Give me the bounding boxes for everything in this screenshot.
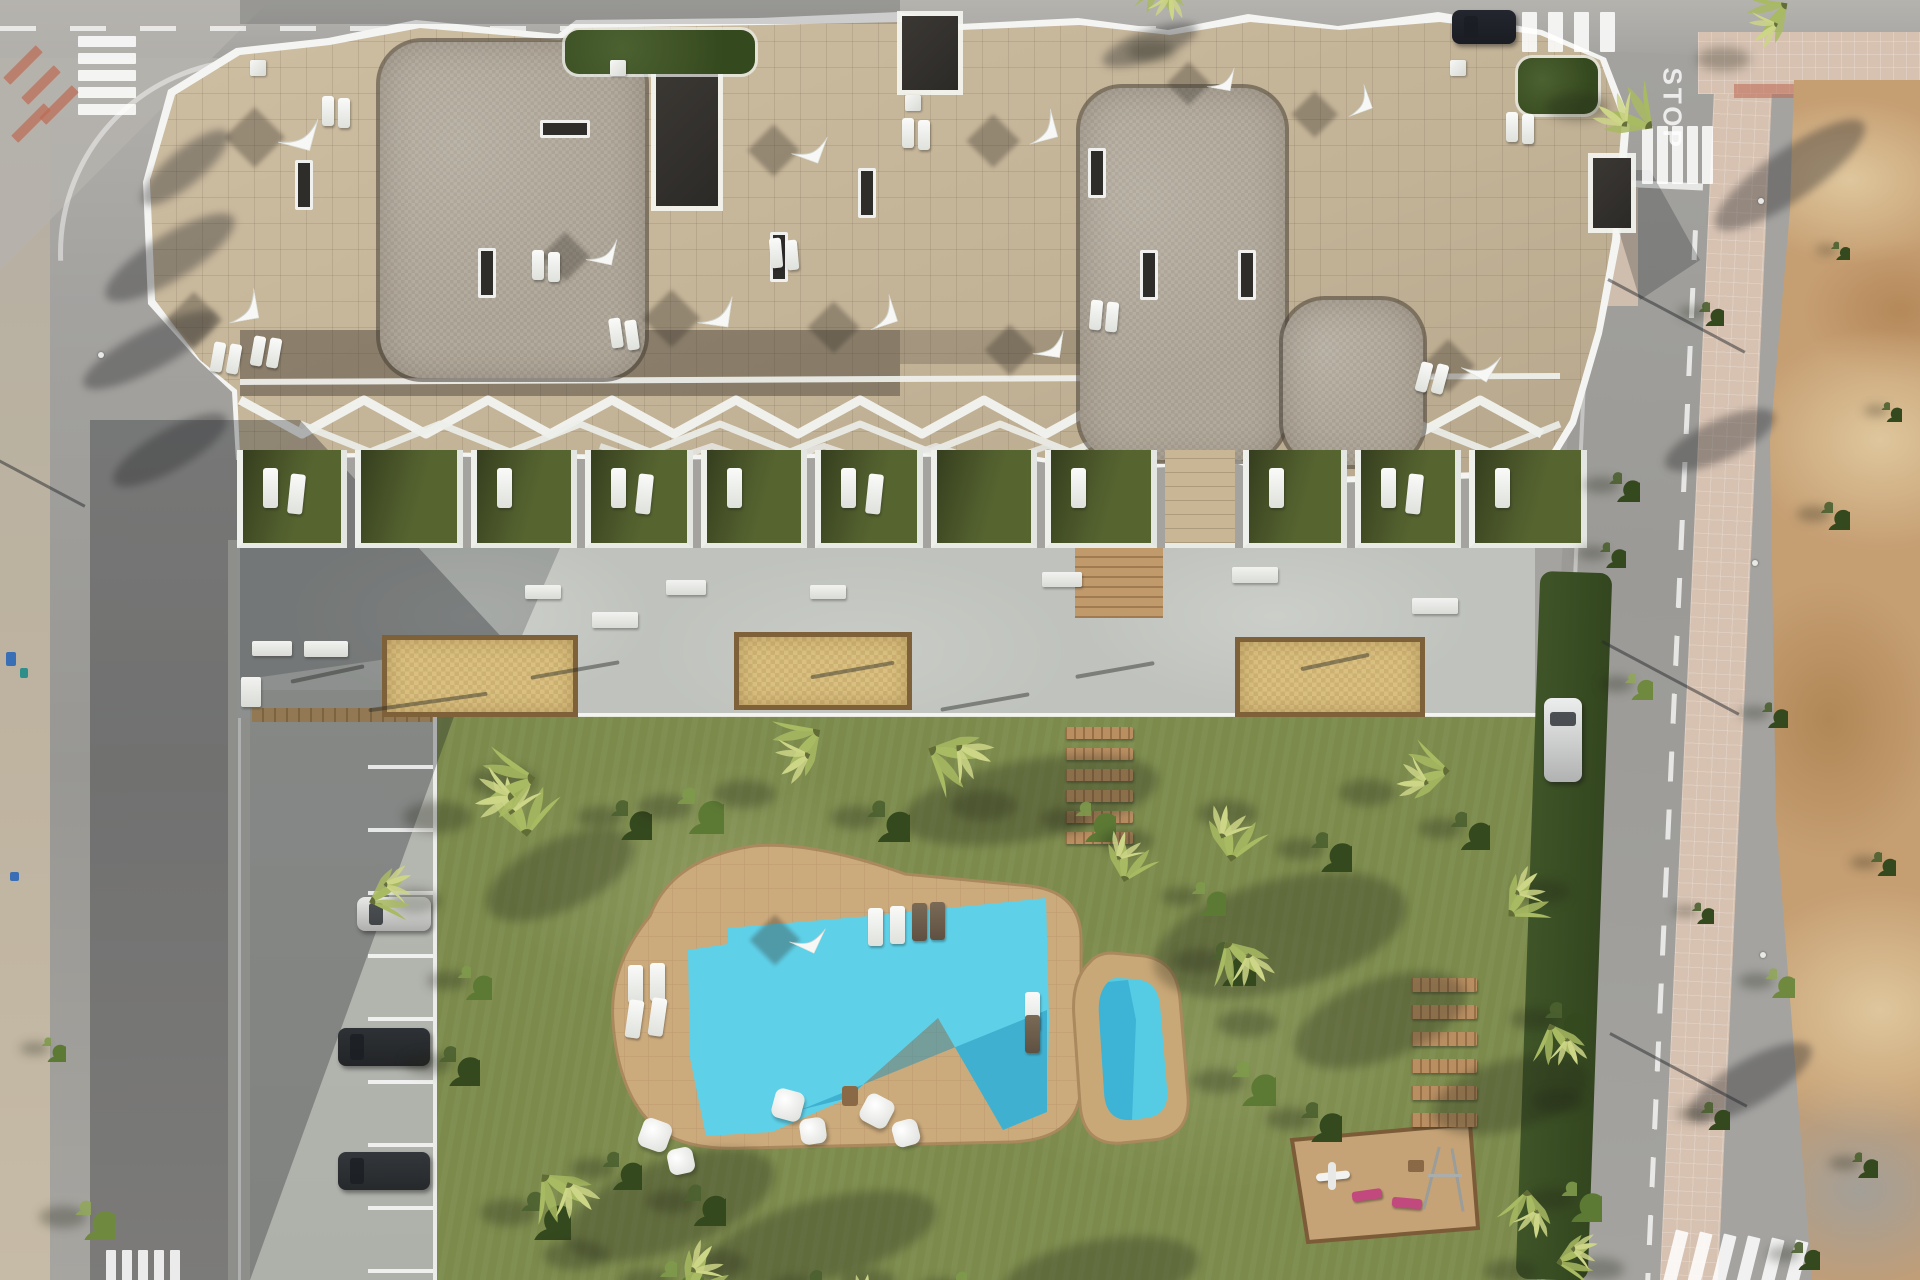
palm-tree (1534, 26, 1653, 145)
dark-bush (489, 1158, 542, 1211)
plant-shadow (576, 806, 624, 828)
pool-lounger (912, 903, 927, 941)
palm-tree (1172, 722, 1312, 862)
parking-line (368, 954, 433, 958)
bench (1412, 598, 1458, 614)
green-bush (1171, 860, 1205, 894)
plant-shadow (1738, 973, 1774, 990)
plant-shadow (1577, 546, 1608, 560)
crosswalk-bar-top_left (78, 36, 136, 47)
palm-tree (1514, 1024, 1630, 1140)
umbrella-shadow (1291, 92, 1338, 139)
kids-pool-water (1099, 978, 1168, 1120)
tree-shadow (1678, 1028, 1822, 1137)
dark-bush (1802, 482, 1833, 513)
swing-frame (1428, 1174, 1462, 1177)
plant-shadow (1532, 1089, 1585, 1113)
dark-bush (1848, 828, 1896, 876)
pole-shadow (810, 661, 894, 680)
gravel-roof-patch (1283, 300, 1423, 465)
plant-shadow (1197, 800, 1257, 828)
red-crosswalk-bar (11, 103, 51, 143)
palm-tree (677, 1187, 787, 1280)
private-garden-terrace (1243, 450, 1347, 548)
dark-bush (778, 1242, 822, 1280)
roof-lounger (624, 319, 640, 350)
plant-shadow (1816, 245, 1838, 255)
parking-line (368, 1143, 433, 1147)
umbrella-shadow (984, 325, 1035, 376)
dark-bush (1826, 1126, 1878, 1178)
crosswalk-bar-bottom_left (106, 1250, 116, 1280)
patio-umbrella (663, 253, 738, 328)
tree-shadow (104, 400, 237, 500)
plant-shadow (427, 971, 468, 990)
tree-shadow (1702, 103, 1878, 247)
deck-table (842, 1086, 858, 1106)
palm-tree (928, 710, 1072, 854)
dark-bush (475, 1144, 571, 1240)
wooden-step (1065, 790, 1133, 802)
red-crosswalk-bar (21, 65, 61, 105)
building-cast-shadow (240, 0, 900, 24)
palm-tree (1335, 725, 1430, 820)
dark-bush (839, 771, 885, 817)
skylight (1140, 250, 1158, 300)
crosswalk-bar-top_left (78, 87, 136, 98)
crosswalk-bar-bottom_right (1708, 1233, 1736, 1280)
dark-bush (1736, 676, 1788, 728)
green-bush (18, 1014, 66, 1062)
dark-bush (572, 760, 652, 840)
green-bush (1036, 762, 1116, 842)
roof-lounger (918, 120, 930, 150)
plant-shadow (1266, 1108, 1314, 1130)
plant-shadow (20, 1042, 49, 1055)
playground-pad (1292, 1124, 1478, 1242)
dark-bush (1794, 474, 1850, 530)
pool-area-graphic (0, 0, 1920, 1280)
plant-shadow (1677, 1106, 1711, 1121)
roof-hedge (565, 30, 755, 74)
skylight (770, 232, 788, 282)
wooden-lounger (1411, 1059, 1477, 1073)
rooftop-unit (610, 60, 626, 76)
parking-line (368, 1269, 433, 1273)
pool-lounger (890, 906, 905, 944)
roof-lounger (548, 252, 560, 282)
crosswalk-bar-bottom_right (1660, 1229, 1688, 1280)
tree-shadow (551, 1125, 789, 1280)
pole-shadow (368, 692, 487, 713)
lounge-cushion (890, 1117, 922, 1149)
stop-line (1631, 180, 1703, 190)
plant-shadow (543, 1240, 608, 1270)
driveway-grate (252, 708, 433, 722)
palm-tree (1123, 0, 1203, 74)
bench (810, 585, 846, 599)
rooftop-unit (905, 95, 921, 111)
pool-lounger (1025, 992, 1040, 1030)
lamp-shadow (0, 432, 86, 507)
palm-tree (396, 733, 514, 851)
gravel-roof-patch (1080, 88, 1285, 460)
palm-tree (1314, 704, 1450, 840)
pool-lounger (647, 997, 667, 1037)
palm-tree (1527, 1037, 1616, 1126)
stop-road-marking: STOP (1652, 72, 1692, 152)
crosswalk-bar-top_left (78, 104, 136, 115)
roof-lounger (902, 118, 914, 148)
crosswalk-bar-top_right (1522, 12, 1537, 52)
plant-shadow (1850, 856, 1879, 869)
car (1452, 10, 1516, 44)
plant-shadow (1600, 676, 1634, 691)
rooftop-unit (1450, 60, 1466, 76)
plant-shadow (770, 1276, 818, 1280)
umbrella-shadow (166, 291, 222, 347)
hedge-strip (1516, 571, 1613, 1280)
crosswalk-bar-top_left (78, 70, 136, 81)
palm-tree (534, 1174, 649, 1280)
lamp-shadow (1601, 640, 1739, 715)
bench (525, 585, 561, 599)
plant-shadow (388, 889, 441, 913)
dark-bush (1868, 388, 1890, 410)
private-garden-terrace (931, 450, 1037, 548)
road-edge-line (1539, 220, 1593, 1280)
plant-shadow (1339, 779, 1397, 805)
pool-lounger (930, 902, 945, 940)
palm-tree (374, 711, 536, 873)
patio-umbrella (1002, 292, 1068, 358)
crosswalk-bar-right_road (1642, 126, 1653, 184)
crosswalk-bar-top_right (1600, 12, 1615, 52)
dark-bush (826, 758, 910, 842)
plant-shadow (1526, 1188, 1574, 1210)
lamp-shadow (1607, 278, 1745, 353)
fence-line (238, 556, 241, 1280)
dark-bush (1518, 974, 1562, 1018)
crosswalk-bar-right_road (1672, 126, 1683, 184)
tree (1747, 949, 1777, 979)
skylight (478, 248, 496, 298)
plant-shadow (1040, 808, 1088, 830)
plant-shadow (480, 1199, 538, 1225)
crosswalk-bar-bottom_left (170, 1250, 180, 1280)
sand-planter (1240, 642, 1420, 712)
patio-umbrella (762, 87, 839, 164)
sun-lounger (841, 468, 856, 508)
dark-bush (1744, 684, 1773, 713)
left-sidewalk (228, 540, 252, 1280)
patio-umbrella (761, 876, 838, 953)
roof-lounger (1506, 112, 1518, 142)
dark-bush (566, 1114, 642, 1190)
private-garden-terrace (471, 450, 577, 548)
terrace-stone-path (1165, 450, 1235, 548)
wooden-lounger (1411, 978, 1477, 992)
plant-shadow (1767, 1246, 1801, 1261)
dark-bush (655, 1155, 701, 1201)
dark-bush (1855, 835, 1881, 861)
pool-deck-texture (613, 845, 1081, 1148)
dark-bush (1834, 1134, 1863, 1163)
wood-platform (1075, 548, 1163, 618)
palm-tree (1515, 831, 1598, 914)
skylight (1088, 148, 1106, 198)
plant-shadow (1100, 829, 1153, 853)
spring-rider (1392, 1197, 1423, 1210)
parking-line (368, 765, 433, 769)
palm-tree (464, 702, 576, 814)
plant-shadow (713, 780, 775, 809)
dark-bush (1582, 524, 1611, 553)
lane-dashes (1643, 230, 1698, 1280)
main-pool-water (688, 898, 1049, 1136)
right-sidewalk (1657, 46, 1774, 1280)
crosswalk-bar-bottom_left (122, 1250, 132, 1280)
green-bush (649, 758, 695, 804)
car (338, 1028, 430, 1066)
red-crosswalk-bar (39, 85, 79, 125)
plant-shadow (637, 795, 692, 820)
roof-lounger (225, 343, 242, 375)
right-road (1526, 50, 1734, 1280)
wooden-step (1065, 748, 1133, 760)
palm-tree (1571, 1211, 1652, 1280)
plant-shadow (1546, 93, 1608, 122)
lamp-shadow (1609, 1032, 1747, 1107)
sun-lounger (497, 468, 512, 508)
swing-frame (1450, 1148, 1464, 1212)
sun-lounger (1381, 468, 1396, 508)
umbrella-shadow (807, 301, 860, 354)
plant-shadow (39, 1206, 87, 1228)
tree (51, 1175, 91, 1215)
palm-tree (1101, 783, 1179, 861)
palm-tree (369, 823, 487, 941)
dark-bush (1274, 1074, 1318, 1118)
pool-lounger (624, 999, 644, 1039)
plant-shadow (1797, 506, 1831, 521)
plant-shadow (1864, 405, 1888, 416)
sand-planter (387, 640, 573, 712)
palm-tree (1195, 745, 1288, 838)
stair-core (1593, 158, 1631, 228)
tree-shadow (1140, 848, 1420, 1022)
crosswalk-bar-bottom_left (154, 1250, 164, 1280)
plant-shadow (1510, 1008, 1558, 1030)
private-garden-terrace (237, 450, 347, 548)
dark-bush (1262, 1062, 1342, 1142)
plant-shadow (687, 1250, 747, 1278)
private-garden-terrace (585, 450, 693, 548)
wooden-step (1065, 811, 1133, 823)
roof-lounger (769, 238, 784, 269)
seesaw (1328, 1162, 1336, 1190)
dark-bush (1414, 774, 1490, 850)
left-verge (0, 0, 56, 1280)
dark-bush (1506, 962, 1586, 1042)
palm-tree (1508, 824, 1603, 919)
private-garden-terrace (1045, 450, 1157, 548)
bench (666, 580, 706, 595)
tree (1608, 655, 1636, 683)
tree (35, 1160, 115, 1240)
private-garden-terrace (1355, 450, 1461, 548)
patio-umbrella (822, 264, 898, 340)
sun-lounger (635, 473, 654, 514)
pool-lounger (1025, 1015, 1040, 1053)
car-windshield (369, 903, 383, 925)
crosswalk-bar-bottom_left (138, 1250, 148, 1280)
parking-line (368, 828, 433, 832)
dark-bush (1425, 785, 1467, 827)
plant-shadow (830, 806, 880, 829)
patio-umbrella (982, 77, 1058, 153)
plant-shadow (1217, 1010, 1277, 1038)
sun-lounger (865, 473, 884, 514)
roof-lounger (322, 96, 334, 126)
sun-lounger (1269, 468, 1284, 508)
building-cast-shadow (0, 0, 1920, 1280)
lounge-cushion (636, 1116, 674, 1154)
roof-lounger (249, 335, 266, 367)
parking-line (368, 1080, 433, 1084)
pole-shadow (1075, 661, 1154, 679)
umbrella-shadow (541, 232, 590, 281)
bench (592, 612, 638, 628)
wooden-step (1065, 727, 1133, 739)
bench (241, 677, 261, 707)
plant-shadow (646, 1190, 696, 1213)
plant-shadow (404, 1052, 452, 1074)
dark-bush (1574, 516, 1626, 568)
sun-lounger (727, 468, 742, 508)
stair-core (902, 16, 958, 90)
dark-bush (1819, 229, 1839, 249)
crosswalk-bar-top_right (1548, 12, 1563, 52)
sun-lounger (287, 473, 306, 514)
roof-lounger (532, 250, 544, 280)
aerial-render-scene: STOP (0, 0, 1920, 1280)
roof-lounger (1430, 363, 1449, 395)
plant-shadow (1739, 706, 1770, 720)
wooden-lounger (1411, 1032, 1477, 1046)
sun-lounger (263, 468, 278, 508)
building-parapet (140, 12, 1636, 494)
waste-bin (20, 668, 28, 678)
palm-tree (1213, 953, 1311, 1051)
crosswalk-bar-right_road (1687, 126, 1698, 184)
lane-dashes (0, 26, 1490, 31)
palm-tree (1462, 1190, 1586, 1280)
roof-lounger (338, 98, 350, 128)
private-garden-terrace (1469, 450, 1587, 548)
street-lamp (1752, 560, 1758, 566)
sidewalk-red-accent (1734, 84, 1810, 98)
lawn-curb (437, 713, 1537, 717)
palm-tree (818, 1198, 947, 1280)
pole-shadow (290, 664, 364, 684)
tree (1735, 938, 1795, 998)
patio-umbrella (242, 65, 328, 151)
tree-shadow (1657, 397, 1783, 484)
street-lamp (98, 352, 104, 358)
roof-lounger (1089, 300, 1104, 331)
tree-shadow (1424, 1040, 1597, 1149)
roof-lounger (785, 240, 800, 271)
plant-shadow (620, 1269, 673, 1280)
dark-bush (1683, 285, 1709, 311)
tree-shadow (74, 297, 225, 403)
green-bush (616, 1218, 704, 1280)
crosswalk-bar-right_road (1657, 126, 1668, 184)
car (357, 897, 431, 931)
gravel-roof-patch (380, 42, 645, 378)
vacant-dirt-lot (1690, 60, 1920, 1280)
crosswalk-bar-top_left (78, 53, 136, 64)
dark-bush (1284, 804, 1328, 848)
plant-shadow (1576, 1258, 1624, 1280)
seesaw (1316, 1170, 1351, 1182)
roof-shadow (240, 330, 900, 396)
skylight (540, 120, 590, 138)
crosswalk-bar-bottom_right (1756, 1237, 1784, 1280)
parking-line (368, 1017, 433, 1021)
dark-bush (412, 1018, 456, 1062)
car-windshield (350, 1034, 364, 1060)
plant-shadow (1515, 879, 1570, 904)
dark-bush (1580, 442, 1640, 502)
street-lamp (1760, 952, 1766, 958)
private-garden-terrace (355, 450, 463, 548)
dark-bush (577, 1125, 619, 1167)
wooden-lounger (1411, 1113, 1477, 1127)
roof-lounger (209, 341, 226, 373)
swing-frame (1422, 1147, 1440, 1210)
crosswalk-bar-right_road (1702, 126, 1713, 184)
wooden-step (1065, 769, 1133, 781)
dark-bush (1862, 382, 1902, 422)
building-cast-shadow (0, 0, 1920, 1280)
dark-bush (1814, 224, 1850, 260)
plant-shadow (1161, 887, 1202, 906)
roof-shadow (900, 330, 1245, 364)
pool-lounger (628, 965, 643, 1003)
pole-shadow (940, 692, 1029, 712)
plant-shadow (1672, 905, 1698, 917)
pole-shadow (1300, 653, 1369, 671)
car-windshield (1550, 712, 1576, 726)
crosswalk-bar-bottom_right (1732, 1235, 1760, 1280)
spring-rider (1351, 1188, 1382, 1202)
plant-shadow (841, 1269, 896, 1280)
roof-lounger (608, 317, 624, 348)
roof-lounger (265, 337, 282, 369)
balcony-wave-parapets (0, 0, 1920, 1280)
umbrella-shadow (747, 124, 800, 177)
dark-bush (584, 772, 628, 816)
dark-bush (1272, 792, 1352, 872)
palm-tree (1201, 941, 1322, 1062)
lawn-curb (433, 713, 437, 1280)
plant-shadow (1418, 818, 1464, 839)
pole-shadow (530, 660, 619, 680)
tree-shadow (94, 199, 245, 317)
green-bush (1205, 1033, 1249, 1077)
